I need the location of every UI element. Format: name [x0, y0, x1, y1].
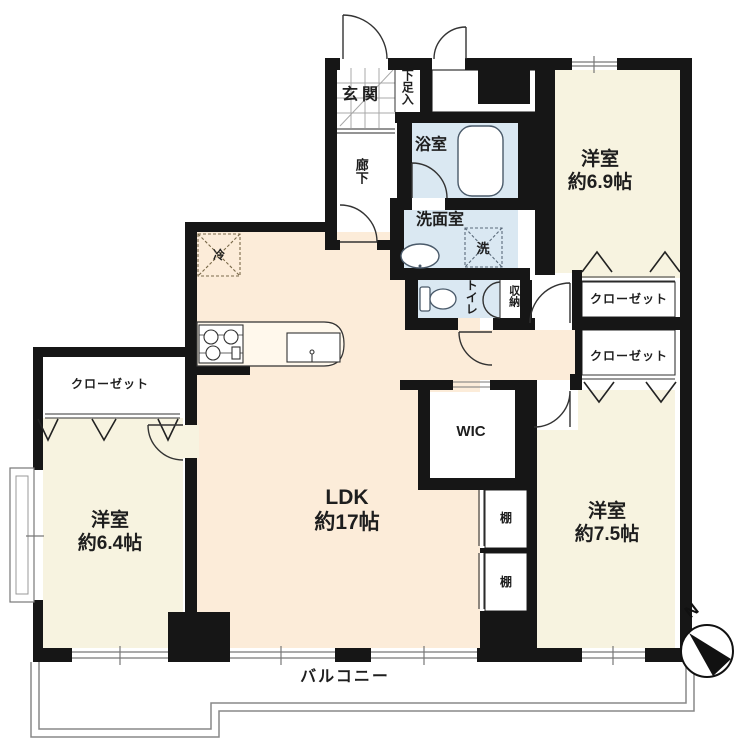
closet-w-label: クローゼット — [71, 377, 149, 391]
bedroom-w-label: 洋室 約6.4帖 — [78, 510, 142, 556]
window-bottom-ldk2 — [371, 646, 477, 665]
closet-ne-label: クローゼット — [590, 292, 668, 306]
bedroom-se-label: 洋室 約7.5帖 — [575, 501, 639, 547]
wic-label: WIC — [456, 423, 485, 441]
window-bottom-ldk1 — [230, 646, 335, 665]
refrigerator-label: 冷 — [213, 248, 225, 262]
kitchen-sink — [287, 333, 340, 362]
balcony-label: バルコニー — [300, 667, 390, 686]
compass-icon — [681, 625, 733, 677]
floorplan-drawing — [0, 0, 750, 750]
bedroom-ne-label: 洋室 約6.9帖 — [568, 149, 632, 195]
toilet-bowl — [430, 289, 456, 309]
shoe-cabinet-label: 下足入 — [400, 69, 414, 105]
washroom-label: 洗面室 — [416, 210, 464, 229]
hallway-label: 廊下 — [353, 158, 369, 184]
toilet-label: トイレ — [464, 279, 478, 315]
shelf-upper-label: 棚 — [500, 511, 512, 525]
bathroom-label: 浴室 — [415, 135, 447, 154]
toilet-tank — [420, 287, 430, 311]
storage-label: 収納 — [506, 285, 519, 307]
window-left-bay — [10, 468, 44, 602]
window-bottom-se — [582, 646, 645, 665]
shelf-lower-label: 棚 — [500, 575, 512, 589]
bathtub — [458, 126, 503, 196]
floorplan: 玄関 下足入 廊下 浴室 洗面室 洗 トイレ 収納 洋室 約6.9帖 クローゼッ… — [0, 0, 750, 750]
entrance-label: 玄関 — [342, 85, 382, 104]
stove — [199, 325, 243, 363]
washer-space-label: 洗 — [476, 241, 489, 257]
washbasin — [401, 244, 439, 268]
living-label: LDK 約17帖 — [314, 485, 379, 535]
closet-e-label: クローゼット — [590, 349, 668, 363]
window-bottom-w — [72, 646, 168, 665]
